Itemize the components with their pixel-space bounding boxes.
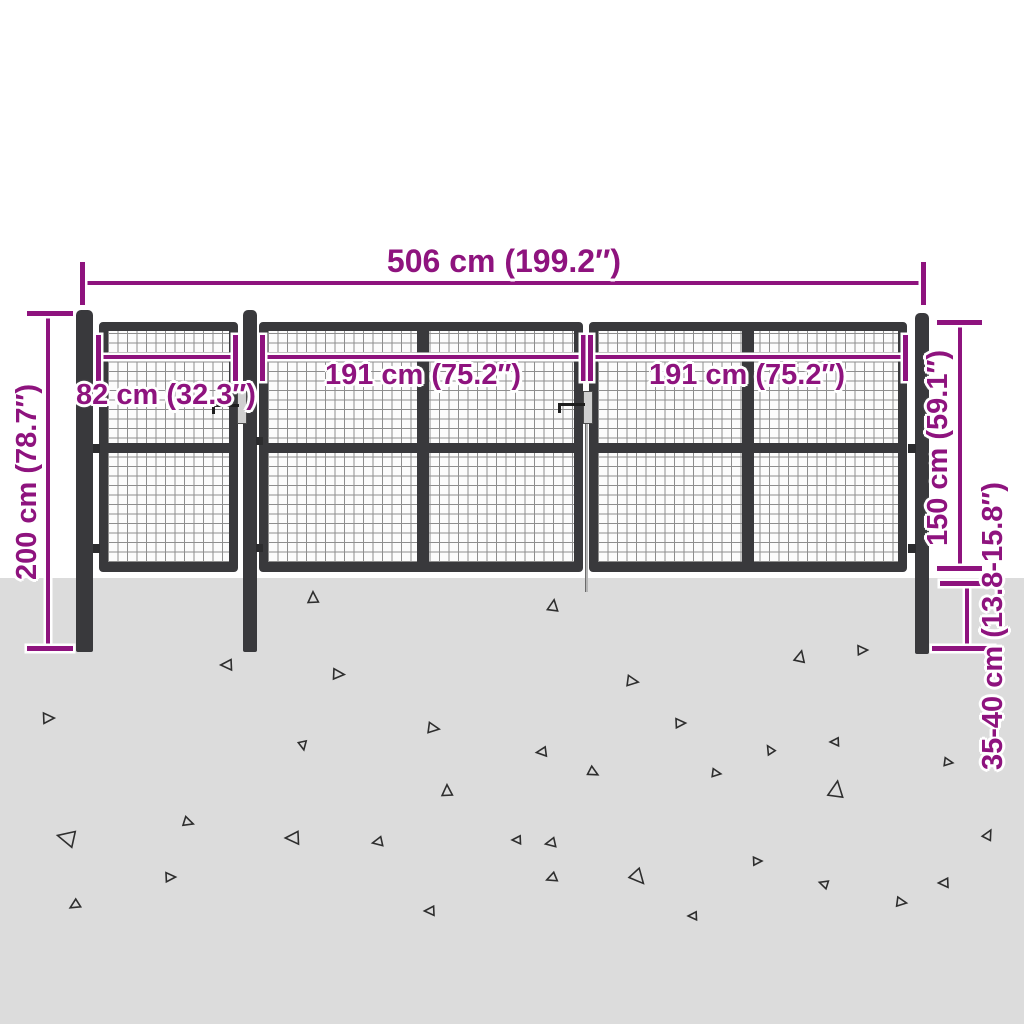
dim-tick-total-width-right [921,262,926,305]
fence-post-left [76,310,93,652]
dim-line-small-gate-width [98,355,237,359]
ground-triangle [183,816,195,828]
ground-triangle [428,722,440,734]
dim-line-above-ground-height [958,322,962,570]
dim-line-anchor-depth [965,583,969,648]
ground-triangle [298,741,307,751]
dim-label-total-width: 506 cm (199.2″) [329,245,679,279]
ground-triangle [372,837,383,848]
dim-label-above-ground-height: 150 cm (59.1″) [923,318,955,578]
dim-tick-small-gate-left [96,335,101,381]
ground-triangle [944,758,954,767]
hinge-left-leaf-bottom [256,544,263,552]
dim-label-post-height: 200 cm (78.7″) [12,312,44,652]
dim-label-left-leaf-width: 191 cm (75.2″) [273,360,573,390]
ground-triangle [828,780,845,798]
ground-triangle [764,744,775,755]
dim-line-total-width [82,281,924,285]
ground-triangle [512,836,520,844]
hinge-small-gate-top [93,444,100,453]
ground-triangle [221,660,232,670]
double-gate-handle-grip [558,403,561,413]
dim-tick-total-width-left [80,262,85,305]
ground-triangle [68,899,81,912]
hinge-left-leaf-top [256,437,263,445]
dim-tick-right-leaf-right [903,335,908,381]
ground-triangle [545,838,556,849]
ground-triangle [688,912,696,920]
ground-triangle [938,878,948,887]
diagram-canvas: 506 cm (199.2″) 82 cm (32.3″) 191 cm (75… [0,0,1024,1024]
ground-triangle [285,831,298,844]
ground-triangle [818,878,829,888]
ground-triangle [794,650,807,663]
ground-triangle [830,738,838,746]
dim-label-small-gate-width: 82 cm (32.3″) [46,380,286,410]
ground-triangle [676,719,686,728]
ground-triangle [547,599,559,611]
double-gate-drop-rod [585,424,588,592]
ground-triangle [896,897,907,908]
ground-triangle [858,646,868,655]
ground-triangle [166,873,176,882]
ground-triangle [712,769,722,778]
ground-triangle [333,669,345,680]
dim-label-anchor-depth: 35-40 cm (13.8-15.8″) [978,456,1010,796]
ground-triangle [56,827,76,847]
double-gate-latch-plate [583,391,593,424]
ground-triangle [982,828,995,841]
ground-triangle [545,872,557,884]
dim-tick-left-leaf-left [260,335,265,381]
ground-triangle [536,747,546,757]
dim-label-right-leaf-width: 191 cm (75.2″) [597,360,897,390]
ground-triangle [627,675,639,687]
ground-triangle [629,868,649,888]
ground-triangle [587,766,600,779]
dim-tick-left-leaf-right [581,335,586,381]
double-gate-handle [558,403,585,406]
ground-triangle [754,857,762,865]
hinge-right-leaf-top [908,444,916,453]
dim-tick-right-leaf-left [588,335,593,381]
hinge-right-leaf-bottom [908,544,916,553]
ground-triangle [308,592,318,603]
ground-triangle [442,785,452,796]
dim-tick-small-gate-right [233,335,238,381]
dim-line-post-height [46,315,50,648]
ground-triangle [44,713,55,723]
small-gate-mid-rail [103,443,234,453]
fence-post-middle [243,310,257,652]
hinge-small-gate-bottom [93,544,100,553]
ground-triangle [424,906,434,915]
